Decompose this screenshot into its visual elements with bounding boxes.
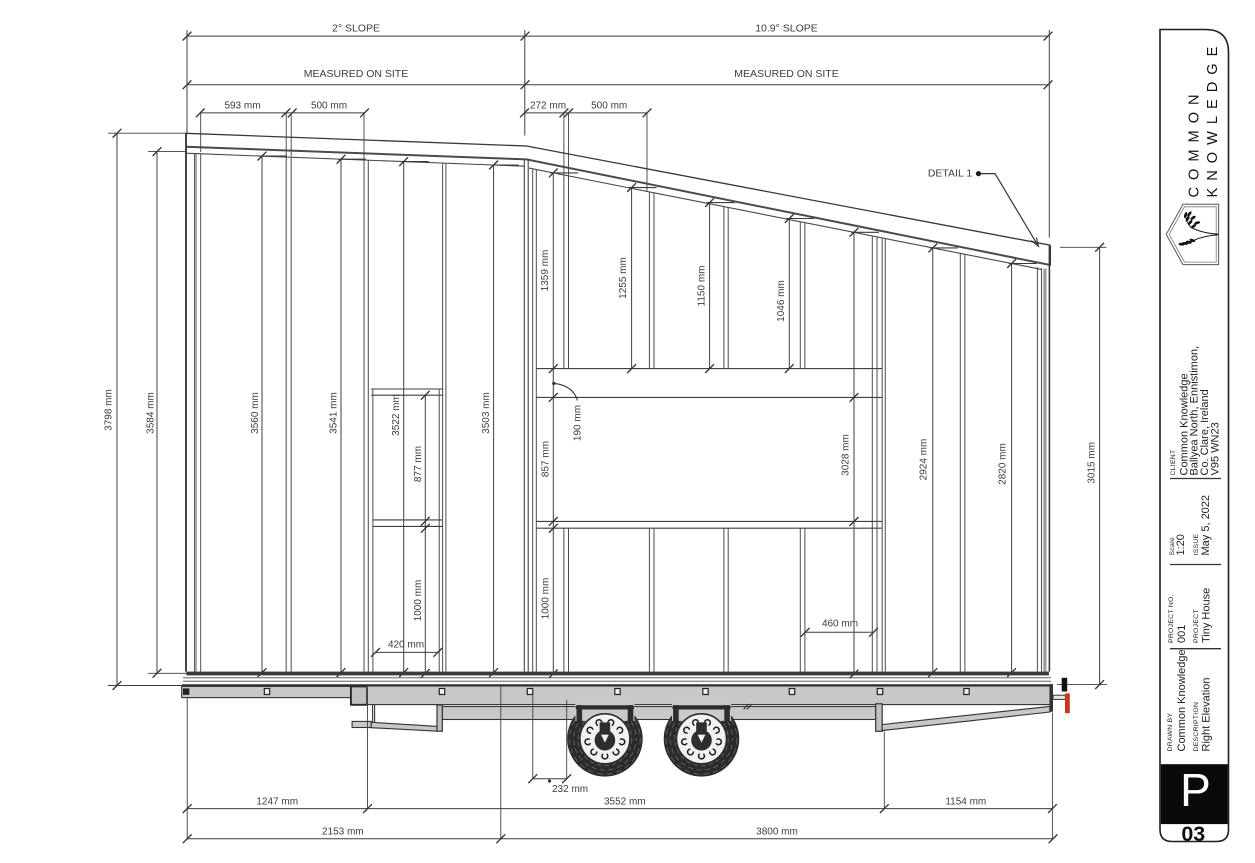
svg-text:PROJECT: PROJECT [1193, 609, 1200, 643]
svg-text:1150 mm: 1150 mm [697, 266, 708, 307]
svg-text:2° SLOPE: 2° SLOPE [332, 23, 380, 35]
svg-text:DESCRIPTION: DESCRIPTION [1193, 702, 1200, 752]
svg-text:P: P [1180, 764, 1211, 816]
svg-text:3584 mm: 3584 mm [145, 392, 156, 434]
svg-text:ISSUE: ISSUE [1193, 533, 1200, 555]
svg-text:1000 mm: 1000 mm [413, 580, 424, 622]
svg-text:1046 mm: 1046 mm [776, 280, 787, 322]
svg-text:Tiny House: Tiny House [1201, 588, 1213, 643]
svg-text:1247 mm: 1247 mm [256, 796, 298, 807]
svg-text:KNOWLEDGE: KNOWLEDGE [1205, 40, 1221, 198]
svg-text:3552 mm: 3552 mm [604, 796, 646, 807]
svg-text:10.9° SLOPE: 10.9° SLOPE [755, 23, 818, 35]
svg-text:2820 mm: 2820 mm [998, 443, 1009, 485]
svg-text:MEASURED ON SITE: MEASURED ON SITE [734, 68, 838, 80]
svg-text:190 mm: 190 mm [573, 405, 584, 441]
svg-text:CLIENT: CLIENT [1170, 450, 1177, 476]
svg-text:Right Elevation: Right Elevation [1201, 678, 1213, 752]
svg-text:PROJECT NO.: PROJECT NO. [1168, 594, 1175, 643]
svg-text:500 mm: 500 mm [591, 101, 627, 112]
svg-text:3560 mm: 3560 mm [250, 392, 261, 434]
svg-text:3522 mm: 3522 mm [391, 394, 402, 436]
svg-text:1359 mm: 1359 mm [540, 250, 551, 292]
svg-text:3028 mm: 3028 mm [841, 434, 852, 476]
svg-text:3015 mm: 3015 mm [1087, 442, 1098, 484]
svg-text:May 5, 2022: May 5, 2022 [1200, 495, 1212, 556]
svg-text:DETAIL 1: DETAIL 1 [928, 168, 973, 180]
svg-text:Common Knowledge: Common Knowledge [1176, 649, 1188, 751]
svg-text:001: 001 [1176, 625, 1188, 643]
svg-text:272 mm: 272 mm [530, 101, 566, 112]
svg-text:1:20: 1:20 [1175, 534, 1187, 555]
svg-text:V95 WN23: V95 WN23 [1210, 422, 1222, 475]
svg-text:DRAWN BY: DRAWN BY [1167, 713, 1174, 752]
svg-text:MEASURED ON SITE: MEASURED ON SITE [304, 68, 408, 80]
svg-text:COMMON: COMMON [1187, 87, 1203, 197]
svg-text:232 mm: 232 mm [552, 784, 588, 795]
svg-text:857 mm: 857 mm [540, 441, 551, 477]
svg-text:03: 03 [1181, 822, 1205, 846]
svg-text:1154 mm: 1154 mm [945, 796, 986, 807]
svg-text:3541 mm: 3541 mm [329, 392, 340, 434]
svg-text:1000 mm: 1000 mm [540, 578, 551, 620]
svg-text:460 mm: 460 mm [822, 619, 858, 630]
svg-text:420 mm: 420 mm [388, 640, 424, 651]
svg-text:500 mm: 500 mm [311, 101, 347, 112]
svg-text:2924 mm: 2924 mm [919, 439, 930, 481]
svg-text:1255 mm: 1255 mm [618, 257, 629, 299]
svg-text:593 mm: 593 mm [224, 101, 260, 112]
svg-text:3800 mm: 3800 mm [756, 827, 798, 838]
svg-text:877 mm: 877 mm [413, 446, 424, 482]
svg-text:2153 mm: 2153 mm [322, 827, 364, 838]
svg-text:3798 mm: 3798 mm [103, 389, 114, 431]
svg-text:3503 mm: 3503 mm [481, 392, 492, 434]
